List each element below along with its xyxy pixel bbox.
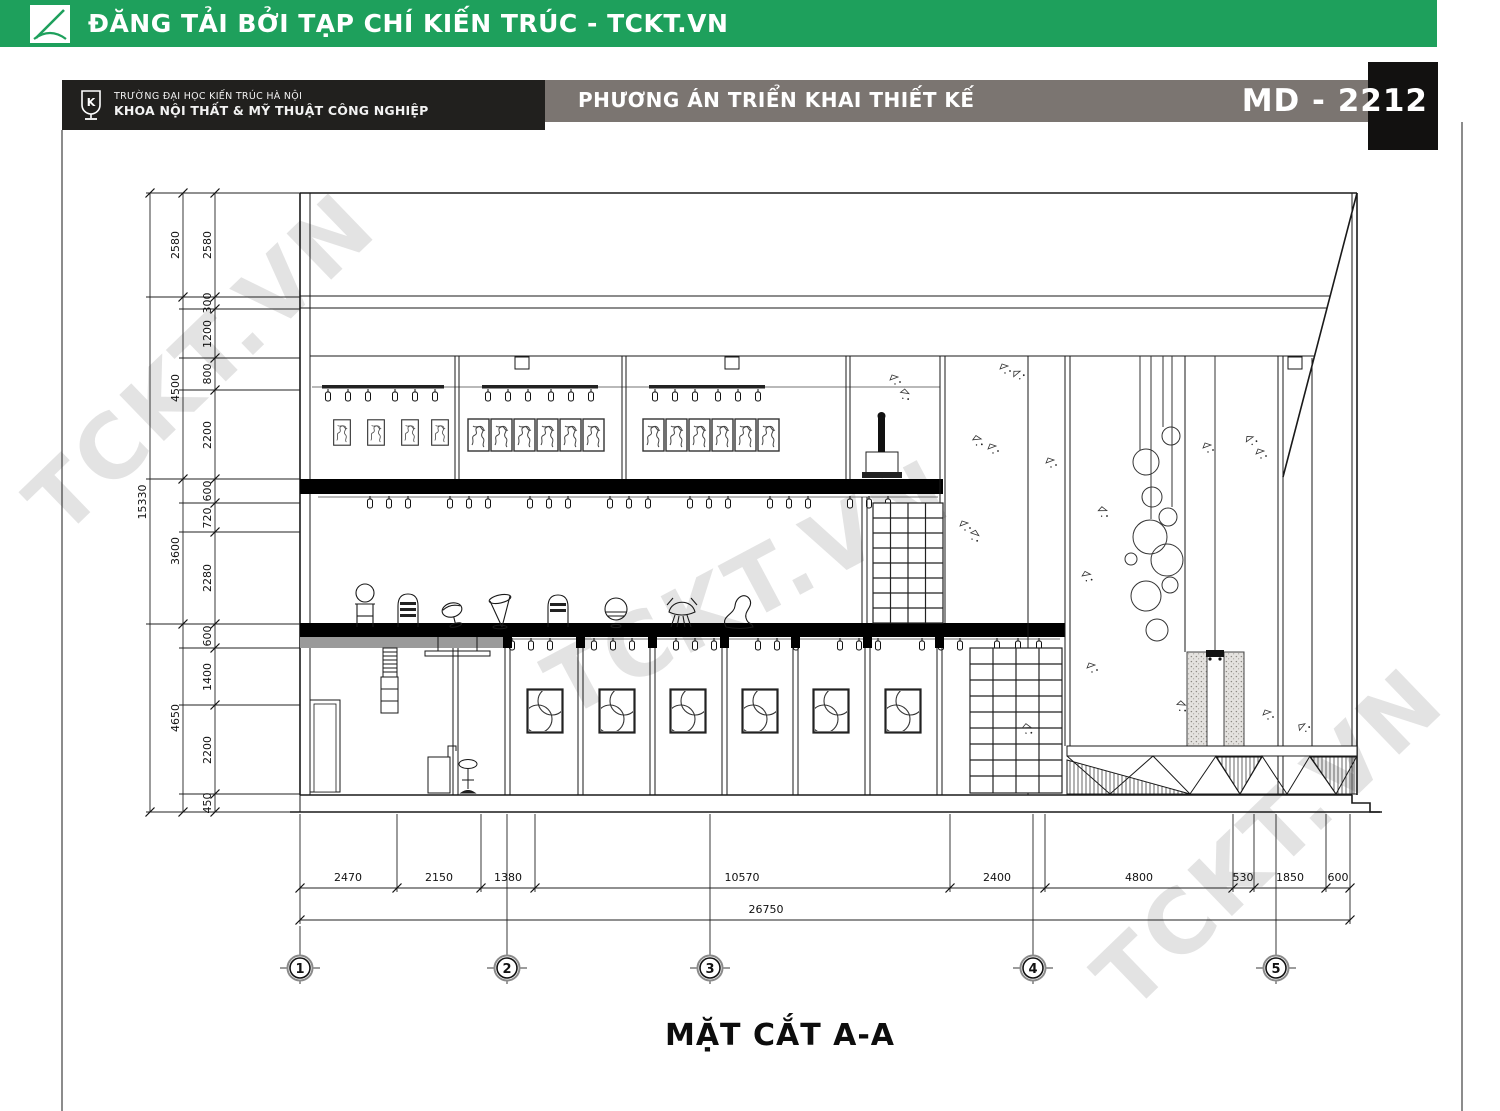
svg-text:2200: 2200	[201, 736, 214, 764]
svg-text:2580: 2580	[169, 231, 182, 259]
svg-text:1400: 1400	[201, 663, 214, 691]
gallery-track-lights	[326, 389, 761, 401]
svg-text:720: 720	[201, 508, 214, 529]
svg-text:3: 3	[705, 962, 714, 977]
chair-arch-2	[548, 595, 568, 627]
publisher-banner: ĐĂNG TẢI BỞI TẠP CHÍ KIẾN TRÚC - TCKT.VN	[0, 0, 1437, 47]
shelf-unit	[381, 648, 398, 713]
svg-text:2280: 2280	[201, 564, 214, 592]
drawing-caption: MẶT CẮT A-A	[665, 1013, 895, 1053]
svg-text:1850: 1850	[1276, 871, 1304, 884]
svg-text:600: 600	[201, 481, 214, 502]
svg-text:2: 2	[502, 962, 511, 977]
svg-text:300: 300	[201, 293, 214, 314]
svg-text:26750: 26750	[749, 903, 784, 916]
svg-text:4800: 4800	[1125, 871, 1153, 884]
publisher-banner-text: ĐĂNG TẢI BỞI TẠP CHÍ KIẾN TRÚC - TCKT.VN	[88, 9, 728, 38]
door	[310, 700, 340, 792]
watermarks: TCKT.VN TCKT.VN TCKT.VN	[6, 172, 1464, 1029]
svg-text:3600: 3600	[169, 537, 182, 565]
svg-text:1: 1	[295, 962, 304, 977]
svg-text:2200: 2200	[201, 421, 214, 449]
svg-text:530: 530	[1233, 871, 1254, 884]
svg-text:K: K	[87, 96, 96, 109]
svg-text:2580: 2580	[201, 231, 214, 259]
statue-pedestal	[862, 412, 902, 478]
gallery-art-frames	[334, 419, 779, 451]
svg-text:10570: 10570	[725, 871, 760, 884]
svg-text:1380: 1380	[494, 871, 522, 884]
svg-text:2400: 2400	[983, 871, 1011, 884]
mid-lattice-shelf	[873, 503, 943, 623]
ground-lattice-shelf	[970, 648, 1062, 793]
chair-stool	[355, 584, 375, 627]
svg-text:2150: 2150	[425, 871, 453, 884]
svg-text:2470: 2470	[334, 871, 362, 884]
sheet-code: MD - 2212	[1242, 83, 1428, 119]
tckt-logo-icon	[30, 5, 70, 43]
svg-text:600: 600	[201, 626, 214, 647]
section-drawing-sheet: TCKT.VN TCKT.VN TCKT.VN	[0, 0, 1500, 1111]
dimension-ticks	[146, 189, 220, 817]
svg-text:4500: 4500	[169, 374, 182, 402]
university-logo-icon: K	[78, 89, 104, 121]
svg-text:5: 5	[1271, 962, 1280, 977]
faculty-name: KHOA NỘI THẤT & MỸ THUẬT CÔNG NGHIỆP	[114, 103, 429, 119]
confetti-triangles	[890, 364, 1311, 736]
svg-text:4650: 4650	[169, 704, 182, 732]
university-name: TRƯỜNG ĐẠI HỌC KIẾN TRÚC HÀ NỘI	[114, 91, 429, 103]
bubble-installation	[1125, 356, 1215, 650]
svg-text:4: 4	[1028, 962, 1037, 977]
svg-text:600: 600	[1328, 871, 1349, 884]
svg-text:1200: 1200	[201, 320, 214, 348]
sheet-subtitle: PHƯƠNG ÁN TRIỂN KHAI THIẾT KẾ	[578, 88, 975, 112]
chair-arch-1	[398, 594, 418, 627]
display-portal	[1187, 650, 1244, 746]
svg-text:450: 450	[201, 793, 214, 814]
svg-text:15330: 15330	[136, 485, 149, 520]
university-block: K TRƯỜNG ĐẠI HỌC KIẾN TRÚC HÀ NỘI KHOA N…	[62, 80, 545, 130]
svg-text:800: 800	[201, 364, 214, 385]
